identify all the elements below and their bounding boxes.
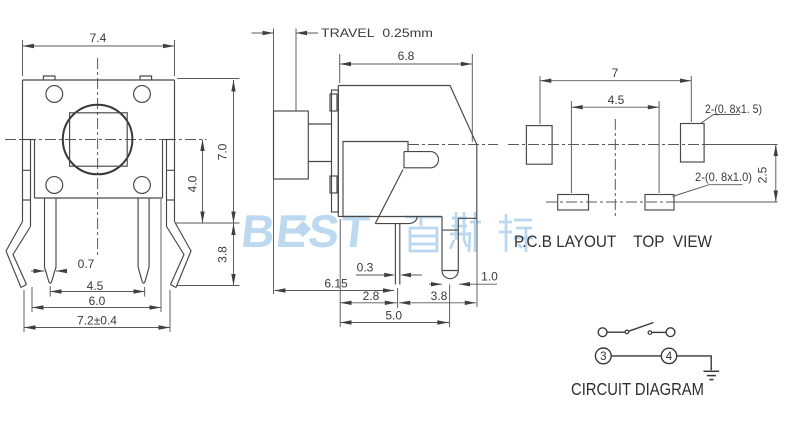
svg-text:6.8: 6.8 [398, 49, 415, 63]
svg-text:2.8: 2.8 [363, 289, 380, 303]
svg-text:0.7: 0.7 [78, 257, 95, 271]
svg-text:4.5: 4.5 [87, 279, 104, 293]
svg-text:7.2±0.4: 7.2±0.4 [77, 314, 117, 328]
svg-text:7: 7 [612, 66, 619, 80]
svg-text:2.5: 2.5 [756, 166, 770, 183]
svg-text:5.0: 5.0 [385, 309, 402, 323]
svg-text:3.8: 3.8 [431, 289, 448, 303]
svg-text:CIRCUIT DIAGRAM: CIRCUIT DIAGRAM [571, 379, 704, 399]
svg-text:3: 3 [600, 351, 606, 363]
svg-text:P.C.B LAYOUT TOP VIEW: P.C.B LAYOUT TOP VIEW [514, 232, 712, 251]
svg-text:1.0: 1.0 [481, 270, 498, 284]
svg-text:6.15: 6.15 [324, 277, 348, 291]
svg-text:4: 4 [666, 351, 673, 363]
svg-text:2-(0. 8x1. 5): 2-(0. 8x1. 5) [705, 102, 762, 116]
svg-text:2-(0. 8x1.0): 2-(0. 8x1.0) [695, 170, 752, 184]
svg-text:7.0: 7.0 [216, 143, 230, 160]
svg-text:6.0: 6.0 [89, 294, 106, 308]
svg-text:4.5: 4.5 [608, 93, 625, 107]
svg-text:4.0: 4.0 [186, 175, 200, 192]
svg-text:7.4: 7.4 [90, 31, 107, 45]
svg-text:TRAVEL 0.25mm: TRAVEL 0.25mm [321, 26, 433, 40]
svg-text:0.3: 0.3 [357, 261, 374, 275]
svg-text:3.8: 3.8 [216, 246, 230, 263]
